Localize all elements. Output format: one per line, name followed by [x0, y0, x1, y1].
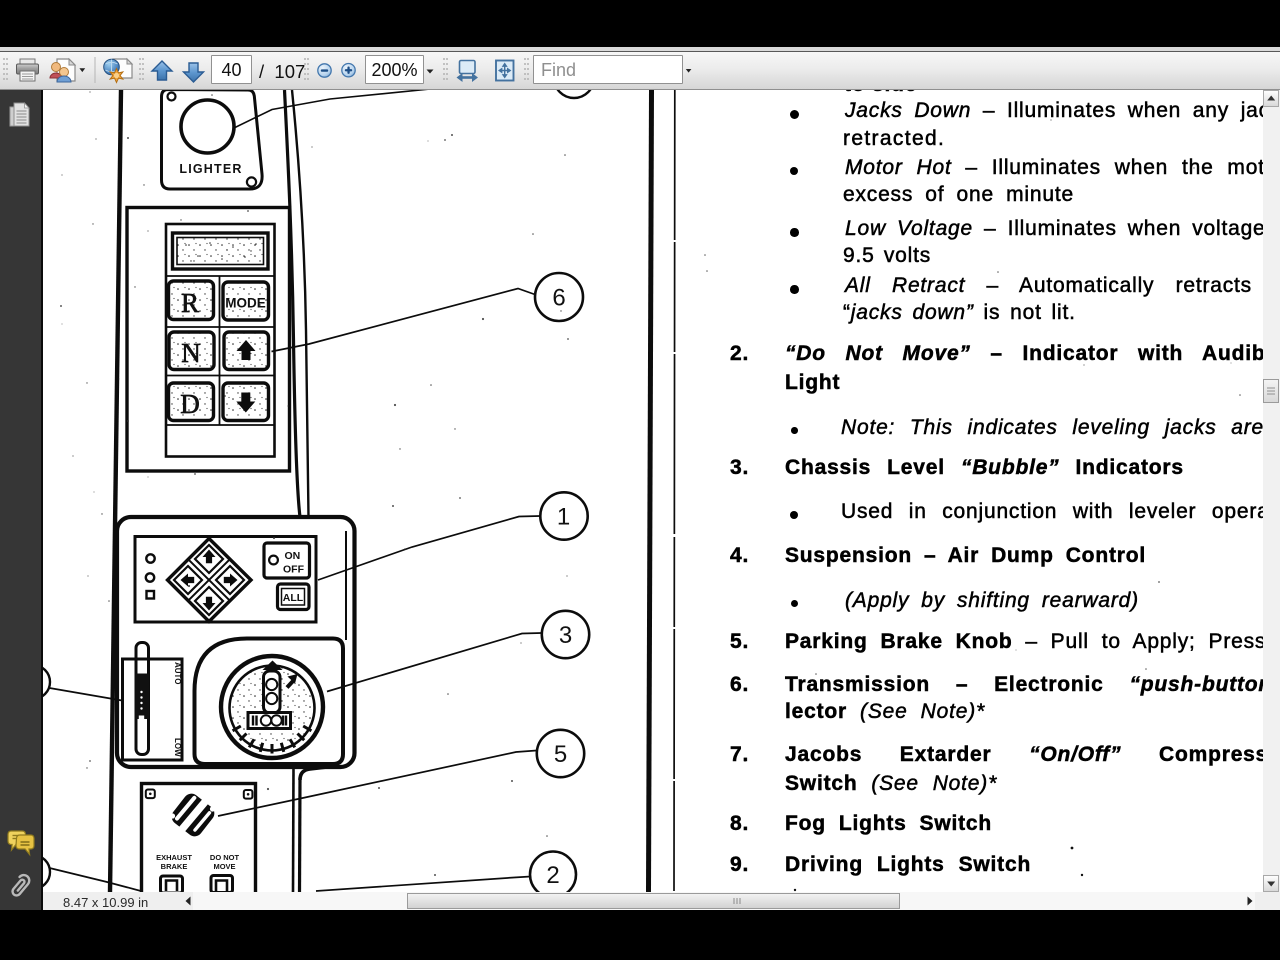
svg-text:5: 5 — [554, 741, 567, 768]
svg-text:MOVE: MOVE — [213, 862, 235, 871]
svg-text:R: R — [181, 288, 199, 318]
svg-text:EXHAUST: EXHAUST — [156, 853, 192, 862]
svg-text:D: D — [180, 389, 200, 419]
svg-text:1: 1 — [557, 504, 570, 531]
svg-text:OFF: OFF — [283, 564, 305, 576]
svg-text:6: 6 — [552, 285, 565, 312]
svg-text:ON: ON — [285, 550, 301, 562]
svg-text:N: N — [181, 338, 201, 368]
svg-text:MODE: MODE — [225, 296, 266, 311]
svg-text:LOW: LOW — [173, 738, 182, 757]
svg-text:2: 2 — [546, 862, 559, 889]
svg-text:BRAKE: BRAKE — [161, 862, 188, 871]
svg-text:DO NOT: DO NOT — [210, 853, 240, 862]
svg-text:AUTO: AUTO — [173, 662, 182, 685]
svg-text:LIGHTER: LIGHTER — [179, 162, 242, 176]
svg-text:ALL: ALL — [283, 592, 304, 604]
svg-text:3: 3 — [559, 622, 572, 649]
